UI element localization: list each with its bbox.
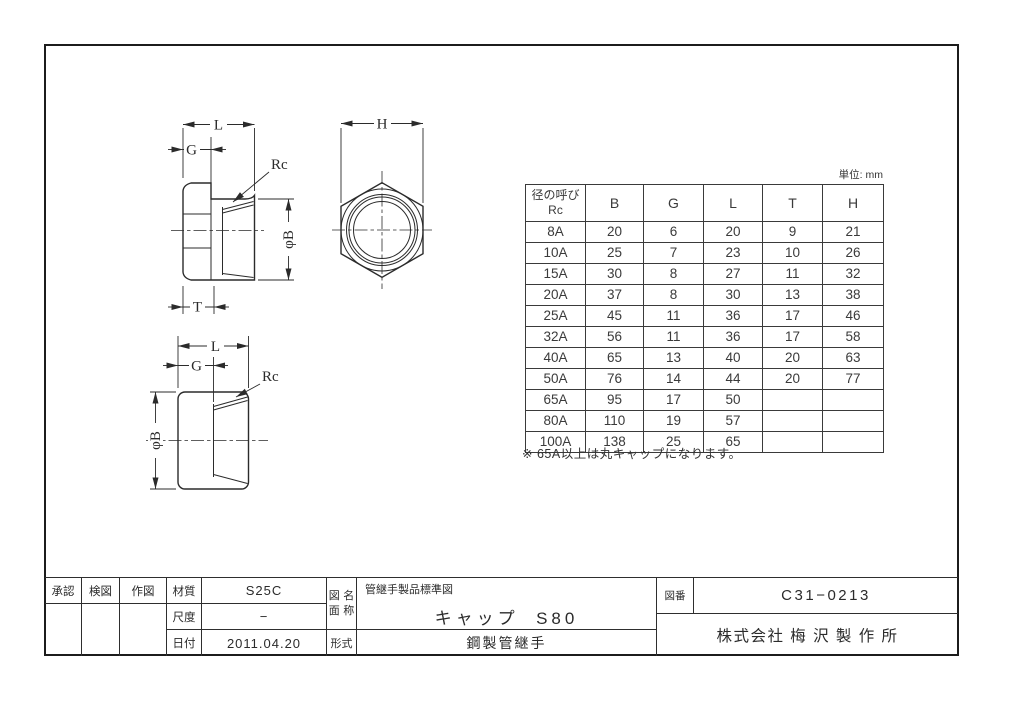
- drawn-label: 作図: [120, 578, 167, 604]
- table-cell: 19: [644, 411, 704, 432]
- table-cell: 44: [704, 369, 763, 390]
- table-cell: 58: [823, 327, 884, 348]
- dim-label-h: H: [377, 117, 388, 133]
- drawing-series-title: 管継手製品標準図: [357, 578, 656, 597]
- approved-signature-cell: [45, 604, 82, 656]
- column-header-g: G: [644, 185, 704, 222]
- table-row: 80A 110 19 57: [526, 411, 884, 432]
- table-cell: 45: [586, 306, 644, 327]
- column-header-size: 径の呼び Rc: [526, 185, 586, 222]
- company-name: 株式会社 梅 沢 製 作 所: [657, 614, 958, 656]
- table-cell: 40: [704, 348, 763, 369]
- table-note: ※ 65A以上は丸キャップになります。: [522, 443, 741, 462]
- table-cell: 15A: [526, 264, 586, 285]
- unit-label: 単位: mm: [763, 167, 883, 182]
- dim-G: G: [168, 137, 226, 196]
- drawing-name-label-line2: 名称: [342, 589, 357, 618]
- table-header-row: 径の呼び Rc B G L T H: [526, 185, 884, 222]
- table-cell: 50: [704, 390, 763, 411]
- table-cell: 36: [704, 306, 763, 327]
- table-cell: 30: [704, 285, 763, 306]
- table-row: 40A 65 13 40 20 63: [526, 348, 884, 369]
- type-value: 鋼製管継手: [357, 630, 657, 656]
- scale-label: 尺度: [167, 604, 202, 630]
- rc-label: Rc: [271, 157, 288, 173]
- table-cell: 23: [704, 243, 763, 264]
- table-cell: 56: [586, 327, 644, 348]
- dim-label-l: L: [211, 339, 220, 355]
- table-cell: 32A: [526, 327, 586, 348]
- table-cell: 26: [823, 243, 884, 264]
- drawing-sheet: L G T: [0, 0, 1024, 724]
- hex-front-view: H: [332, 116, 432, 290]
- table-cell: 30: [586, 264, 644, 285]
- table-row: 32A 56 11 36 17 58: [526, 327, 884, 348]
- table-cell: 10A: [526, 243, 586, 264]
- dim-label-g: G: [191, 359, 202, 375]
- table-cell: 57: [704, 411, 763, 432]
- table-cell: 32: [823, 264, 884, 285]
- drawing-number-label: 図番: [657, 578, 694, 614]
- table-cell: 20: [763, 369, 823, 390]
- table-cell: 25: [586, 243, 644, 264]
- dim-label-g: G: [186, 143, 197, 159]
- table-cell: 11: [644, 306, 704, 327]
- table-cell: 50A: [526, 369, 586, 390]
- table-cell: 17: [763, 306, 823, 327]
- dim-label-t: T: [193, 300, 202, 316]
- table-cell: 8A: [526, 222, 586, 243]
- table-row: 20A 37 8 30 13 38: [526, 285, 884, 306]
- table-cell: [823, 432, 884, 453]
- type-label: 形式: [327, 630, 357, 656]
- table-cell: 11: [763, 264, 823, 285]
- table-row: 65A 95 17 50: [526, 390, 884, 411]
- table-cell: [823, 390, 884, 411]
- rc-callout: Rc: [236, 369, 279, 397]
- drawing-name: キャップ S80: [357, 597, 656, 629]
- table-cell: [763, 432, 823, 453]
- rc-callout: Rc: [233, 157, 288, 202]
- table-cell: 25A: [526, 306, 586, 327]
- table-cell: [763, 390, 823, 411]
- table-cell: 11: [644, 327, 704, 348]
- approved-label: 承認: [45, 578, 82, 604]
- column-header-h: H: [823, 185, 884, 222]
- dim-phi-b: φB: [258, 199, 297, 280]
- table-row: 25A 45 11 36 17 46: [526, 306, 884, 327]
- table-cell: 21: [823, 222, 884, 243]
- table-row: 15A 30 8 27 11 32: [526, 264, 884, 285]
- table-cell: 80A: [526, 411, 586, 432]
- checked-label: 検図: [82, 578, 120, 604]
- table-cell: 20: [704, 222, 763, 243]
- table-cell: [763, 411, 823, 432]
- table-cell: 95: [586, 390, 644, 411]
- drawing-name-cell: 管継手製品標準図 キャップ S80: [357, 578, 657, 630]
- size-header-line1: 径の呼び: [531, 188, 579, 202]
- date-label: 日付: [167, 630, 202, 656]
- round-cap-side-view: L G φB Rc: [146, 336, 279, 489]
- table-cell: 63: [823, 348, 884, 369]
- table-cell: 65: [586, 348, 644, 369]
- table-cell: 36: [704, 327, 763, 348]
- dim-label-l: L: [214, 118, 223, 134]
- column-header-l: L: [704, 185, 763, 222]
- table-cell: 40A: [526, 348, 586, 369]
- size-header-line2: Rc: [548, 203, 563, 217]
- material-label: 材質: [167, 578, 202, 604]
- dim-G: G: [163, 357, 228, 402]
- dim-label-phi-b: φB: [148, 431, 164, 450]
- table-cell: 7: [644, 243, 704, 264]
- table-cell: 110: [586, 411, 644, 432]
- dimension-table: 径の呼び Rc B G L T H 8A 20 6 20 9 21 10A 2: [525, 184, 884, 453]
- column-header-t: T: [763, 185, 823, 222]
- table-cell: 13: [763, 285, 823, 306]
- table-cell: 27: [704, 264, 763, 285]
- dim-T: T: [168, 286, 229, 316]
- rc-label: Rc: [262, 369, 279, 385]
- table-cell: 17: [644, 390, 704, 411]
- table-cell: 76: [586, 369, 644, 390]
- checked-signature-cell: [82, 604, 120, 656]
- column-header-b: B: [586, 185, 644, 222]
- drawing-name-label: 図面 名称: [327, 578, 357, 630]
- scale-value: −: [202, 604, 327, 630]
- drawing-name-label-line1: 図面: [327, 589, 342, 618]
- table-row: 8A 20 6 20 9 21: [526, 222, 884, 243]
- table-cell: 20: [763, 348, 823, 369]
- material-value: S25C: [202, 578, 327, 604]
- table-cell: 20A: [526, 285, 586, 306]
- drawn-signature-cell: [120, 604, 167, 656]
- table-cell: 6: [644, 222, 704, 243]
- title-block: 承認 検図 作図 材質 尺度 日付 S25C − 2011.04.20 図面 名…: [45, 577, 958, 655]
- table-row: 50A 76 14 44 20 77: [526, 369, 884, 390]
- table-cell: 20: [586, 222, 644, 243]
- table-cell: 9: [763, 222, 823, 243]
- table-cell: 37: [586, 285, 644, 306]
- table-cell: 46: [823, 306, 884, 327]
- drawing-number-value: C31−0213: [694, 578, 958, 614]
- table-cell: 17: [763, 327, 823, 348]
- table-cell: 10: [763, 243, 823, 264]
- hex-cap-side-view: L G T: [168, 117, 297, 316]
- dim-label-phi-b: φB: [281, 230, 297, 249]
- table-cell: 14: [644, 369, 704, 390]
- table-cell: 8: [644, 285, 704, 306]
- table-cell: 38: [823, 285, 884, 306]
- table-cell: 8: [644, 264, 704, 285]
- table-row: 10A 25 7 23 10 26: [526, 243, 884, 264]
- table-cell: 13: [644, 348, 704, 369]
- date-value: 2011.04.20: [202, 630, 327, 656]
- table-cell: [823, 411, 884, 432]
- table-cell: 65A: [526, 390, 586, 411]
- table-cell: 77: [823, 369, 884, 390]
